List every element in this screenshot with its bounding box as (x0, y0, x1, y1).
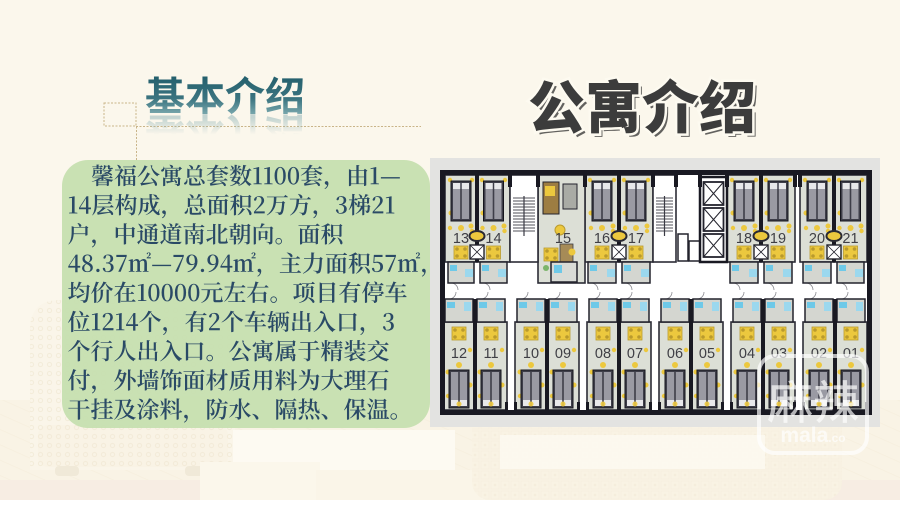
svg-text:07: 07 (627, 346, 643, 362)
svg-text:09: 09 (555, 346, 571, 362)
svg-text:21: 21 (842, 231, 858, 247)
svg-text:06: 06 (667, 346, 683, 362)
svg-text:18: 18 (736, 231, 752, 247)
svg-text:19: 19 (770, 231, 786, 247)
svg-text:14: 14 (485, 231, 501, 247)
svg-text:04: 04 (739, 346, 755, 362)
svg-text:20: 20 (809, 231, 825, 247)
svg-text:08: 08 (595, 346, 611, 362)
svg-text:16: 16 (594, 231, 610, 247)
svg-text:13: 13 (453, 231, 469, 247)
svg-text:11: 11 (483, 346, 498, 362)
svg-text:17: 17 (628, 231, 644, 247)
svg-text:12: 12 (451, 346, 467, 362)
svg-text:05: 05 (699, 346, 715, 362)
svg-text:15: 15 (555, 231, 571, 247)
svg-text:10: 10 (523, 346, 539, 362)
